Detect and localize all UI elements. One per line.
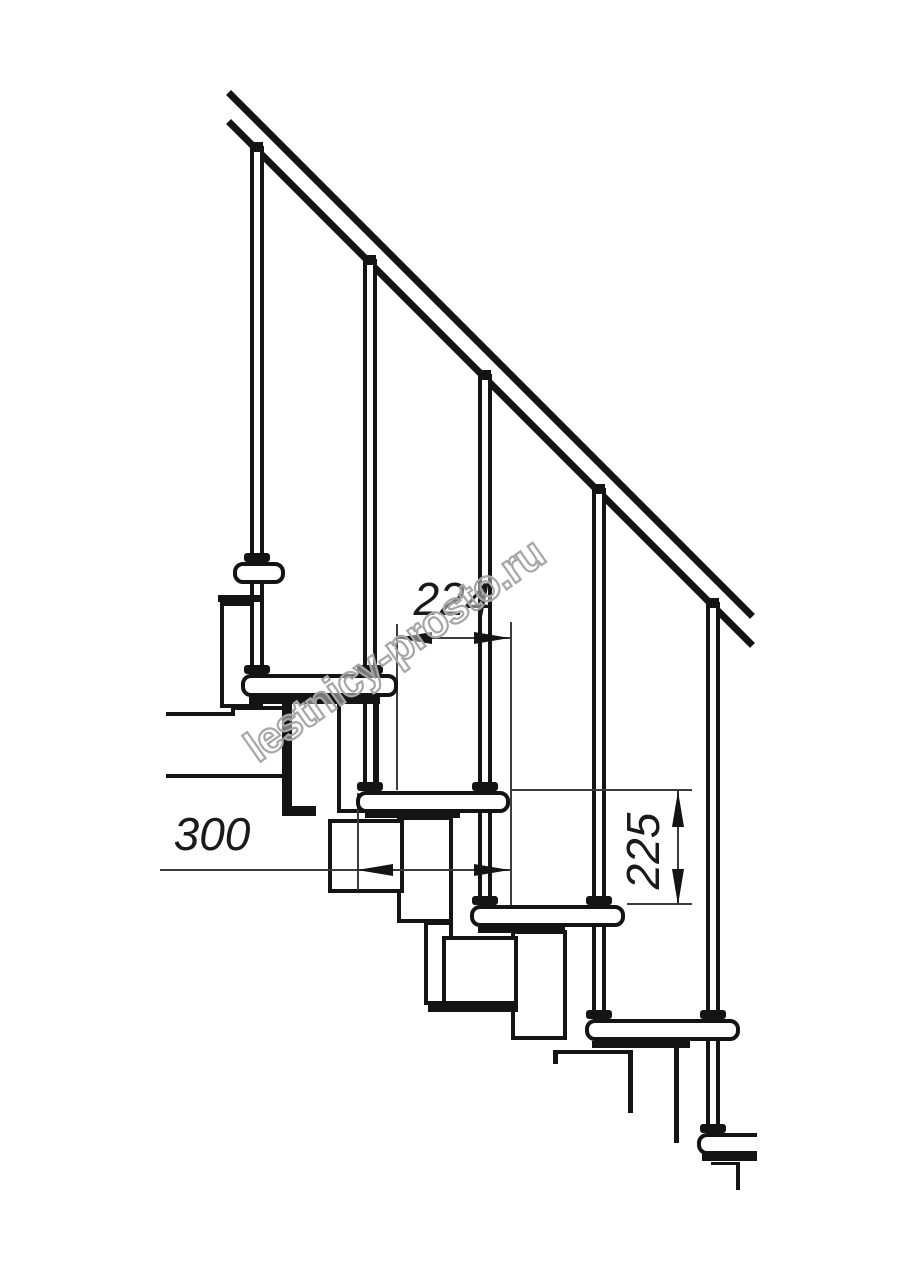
ext-line-224-right [510,622,512,907]
baluster-5-collar-upper [700,1010,726,1019]
module-v5-right-line [674,1046,679,1143]
dim-leader-300 [160,869,510,871]
dim-300-arrow-right [474,864,510,876]
baluster-1-collar-lower [244,665,270,674]
staircase-drawing: 224300225lestnicy-prosto.ru [0,0,914,1280]
tread-5-under-bracket [592,1041,690,1048]
baluster-1-collar-upper [244,553,270,562]
module-s4-left-stub [553,1050,558,1064]
dim-300-arrow-left [357,864,393,876]
tread-1-under-bracket [218,595,262,602]
baluster-5-rail-nub [707,598,719,608]
dim-label-300: 300 [174,811,251,857]
baluster-2-rail-nub [364,255,376,265]
platform-floor-line-left [166,712,233,716]
baluster-4-rail-nub [593,484,605,494]
dim-label-225: 225 [620,813,666,890]
module-s3-flange [428,1003,518,1012]
tread-4 [470,905,625,927]
baluster-5 [706,602,720,1133]
dim-225-arrow-down [672,869,684,905]
baluster-4-collar-upper [586,896,612,905]
tread-1 [233,562,285,584]
baluster-3-rail-nub [479,370,491,380]
baluster-4 [592,488,606,1019]
tread-3-under-bracket [365,812,460,818]
module-s4-top-line [553,1050,631,1054]
baluster-3-collar-lower [472,896,498,905]
tread-5 [585,1019,740,1041]
platform-foot-bit [282,806,316,816]
tread-3 [356,791,510,813]
module-s2 [328,819,404,893]
module-s3 [442,936,518,1005]
base-corner-v-line [736,1162,740,1190]
baluster-2 [363,259,377,791]
dim-225-arrow-up [672,791,684,827]
baluster-2-collar-lower [357,782,383,791]
baluster-3-collar-upper [472,782,498,791]
platform-bottom-line [166,774,284,778]
base-corner-h-line [711,1162,739,1165]
module-v5-left-line [628,1050,633,1113]
baluster-5-collar-lower [700,1124,726,1133]
tread-4-under-bracket [478,927,565,933]
baluster-4-collar-lower [586,1010,612,1019]
baluster-1-rail-nub [251,142,263,152]
module-v4 [511,930,567,1040]
watermark-text: lestnicy-prosto.ru [237,531,552,770]
ext-line-225-top [512,789,692,791]
dim-224-arrow-right [474,632,510,644]
tread-6-under-bracket [702,1152,757,1161]
